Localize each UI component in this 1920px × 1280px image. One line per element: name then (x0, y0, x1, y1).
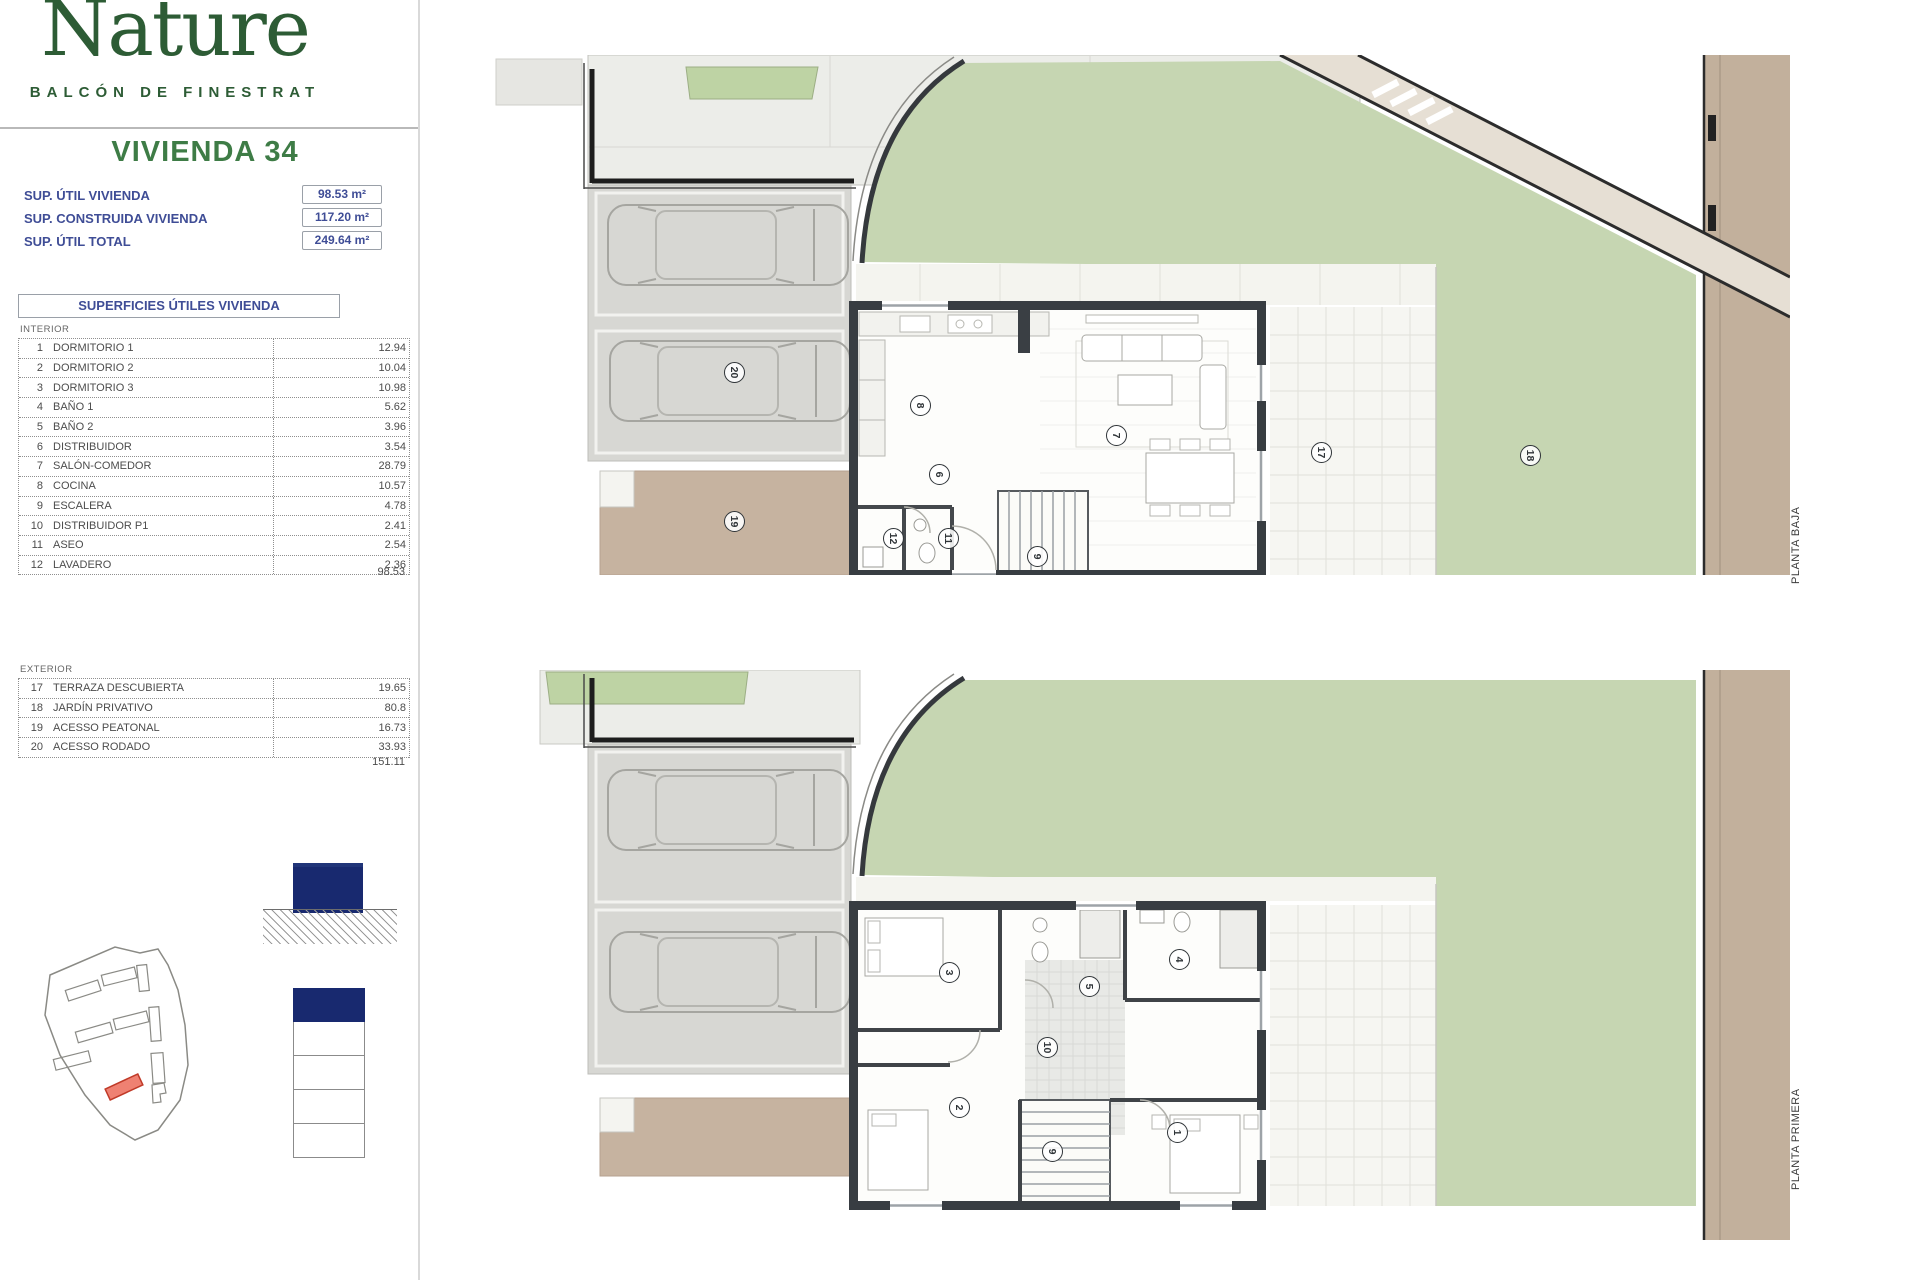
planta-primera-drawing (480, 670, 1790, 1240)
spec-value: 98.53 m² (302, 185, 382, 204)
spec-row: SUP. CONSTRUIDA VIVIENDA 117.20 m² (24, 211, 394, 231)
table-row: 9ESCALERA4.78 (19, 497, 409, 517)
room-bubble: 1 (1167, 1122, 1188, 1143)
brand-tagline: BALCÓN DE FINESTRAT (0, 84, 350, 101)
planta-baja-drawing (480, 55, 1790, 575)
planta-primera-label: PLANTA PRIMERA (1790, 1095, 1802, 1190)
room-bubble: 8 (910, 395, 931, 416)
spec-label: SUP. ÚTIL VIVIENDA (24, 188, 150, 203)
interior-table: 1DORMITORIO 112.94 2DORMITORIO 210.04 3D… (18, 338, 410, 575)
table-row: 6DISTRIBUIDOR3.54 (19, 437, 409, 457)
spec-value: 249.64 m² (302, 231, 382, 250)
table-row: 18JARDÍN PRIVATIVO80.8 (19, 699, 409, 719)
table-row: 11ASEO2.54 (19, 536, 409, 556)
room-bubble: 2 (949, 1097, 970, 1118)
table-row: 8COCINA10.57 (19, 477, 409, 497)
room-bubble: 18 (1520, 445, 1541, 466)
room-bubble: 9 (1027, 546, 1048, 567)
room-bubble: 7 (1106, 425, 1127, 446)
spec-value: 117.20 m² (302, 208, 382, 227)
section-diagram-ground-hatch (263, 909, 397, 944)
table-row: 1DORMITORIO 112.94 (19, 339, 409, 359)
planta-primera-plan: 3 5 4 10 2 9 1 (480, 670, 1790, 1240)
room-bubble: 17 (1311, 442, 1332, 463)
areas-table-header: SUPERFICIES ÚTILES VIVIENDA (18, 294, 340, 318)
room-bubble: 4 (1169, 949, 1190, 970)
spec-label: SUP. CONSTRUIDA VIVIENDA (24, 211, 207, 226)
room-bubble: 10 (1037, 1037, 1058, 1058)
brand-logo: Nature (0, 0, 350, 74)
table-row: 2DORMITORIO 210.04 (19, 359, 409, 379)
exterior-section-label: EXTERIOR (20, 664, 73, 675)
room-bubble: 20 (724, 362, 745, 383)
table-row: 3DORMITORIO 310.98 (19, 378, 409, 398)
info-panel: Nature BALCÓN DE FINESTRAT VIVIENDA 34 S… (0, 0, 420, 1280)
plan-sheet: Nature BALCÓN DE FINESTRAT VIVIENDA 34 S… (0, 0, 1920, 1280)
interior-total: 98.53 (18, 566, 408, 578)
table-row: 10DISTRIBUIDOR P12.41 (19, 516, 409, 536)
table-row: 4BAÑO 15.62 (19, 398, 409, 418)
site-key-map (40, 935, 195, 1150)
exterior-total: 151.11 (18, 756, 408, 768)
table-row: 7SALÓN-COMEDOR28.79 (19, 457, 409, 477)
room-bubble: 6 (929, 464, 950, 485)
exterior-table: 17TERRAZA DESCUBIERTA19.65 18JARDÍN PRIV… (18, 678, 410, 758)
room-bubble: 12 (883, 528, 904, 549)
planta-baja-plan: 20 19 8 6 12 11 9 7 17 18 (480, 55, 1790, 575)
page-title: VIVIENDA 34 (0, 136, 410, 169)
room-bubble: 5 (1079, 976, 1100, 997)
interior-section-label: INTERIOR (20, 324, 69, 335)
spec-row: SUP. ÚTIL TOTAL 249.64 m² (24, 234, 394, 254)
planta-baja-label: PLANTA BAJA (1790, 514, 1802, 584)
spec-row: SUP. ÚTIL VIVIENDA 98.53 m² (24, 188, 394, 208)
room-bubble: 9 (1042, 1141, 1063, 1162)
room-bubble: 3 (939, 962, 960, 983)
elevation-stack-diagram (293, 988, 365, 1158)
stack-highlight-floor (293, 988, 365, 1022)
room-bubble: 11 (938, 528, 959, 549)
section-diagram-building (293, 863, 363, 913)
table-row: 17TERRAZA DESCUBIERTA19.65 (19, 679, 409, 699)
spec-label: SUP. ÚTIL TOTAL (24, 234, 131, 249)
room-bubble: 19 (724, 511, 745, 532)
divider (0, 127, 418, 129)
table-row: 20ACESSO RODADO33.93 (19, 738, 409, 758)
table-row: 19ACESSO PEATONAL16.73 (19, 718, 409, 738)
table-row: 5BAÑO 23.96 (19, 418, 409, 438)
